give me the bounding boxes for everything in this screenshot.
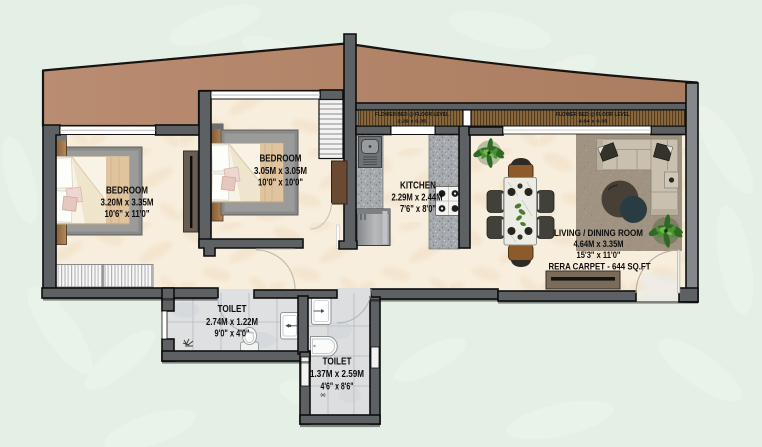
- svg-text:3.20M x 3.35M: 3.20M x 3.35M: [101, 198, 154, 209]
- svg-text:2.29 x 0.35: 2.29 x 0.35: [398, 119, 427, 125]
- svg-text:2.74M x 1.22M: 2.74M x 1.22M: [206, 317, 258, 328]
- svg-text:LIVING / DINING ROOM: LIVING / DINING ROOM: [554, 228, 643, 239]
- svg-text:4.64M x 3.35M: 4.64M x 3.35M: [574, 239, 624, 250]
- svg-text:10'6" x 11'0": 10'6" x 11'0": [105, 209, 150, 220]
- svg-text:TOILET: TOILET: [323, 357, 352, 368]
- svg-text:4.64 x 0.35: 4.64 x 0.35: [579, 119, 608, 125]
- svg-text:15'3" x 11'0": 15'3" x 11'0": [577, 250, 621, 261]
- svg-text:RERA CARPET - 644 SQ.FT: RERA CARPET - 644 SQ.FT: [549, 262, 651, 273]
- svg-text:7'6" x 8'0": 7'6" x 8'0": [400, 204, 436, 215]
- svg-text:KITCHEN: KITCHEN: [400, 181, 436, 192]
- svg-text:2.29M x 2.44M: 2.29M x 2.44M: [392, 193, 443, 204]
- svg-text:1.37M x 2.59M: 1.37M x 2.59M: [310, 369, 364, 380]
- svg-text:BEDROOM: BEDROOM: [106, 186, 148, 197]
- svg-text:4'6" x 8'6": 4'6" x 8'6": [321, 382, 354, 393]
- svg-text:3.05M x 3.05M: 3.05M x 3.05M: [254, 166, 307, 177]
- svg-text:FLOWER BED @ FLOOR LEVEL: FLOWER BED @ FLOOR LEVEL: [375, 112, 449, 118]
- svg-text:BEDROOM: BEDROOM: [260, 154, 302, 165]
- svg-text:10'0" x 10'0": 10'0" x 10'0": [258, 178, 303, 189]
- svg-text:9'0" x 4'0": 9'0" x 4'0": [215, 329, 250, 340]
- svg-text:FLOWER BED @ FLOOR LEVEL: FLOWER BED @ FLOOR LEVEL: [556, 112, 630, 118]
- svg-text:TOILET: TOILET: [218, 304, 247, 315]
